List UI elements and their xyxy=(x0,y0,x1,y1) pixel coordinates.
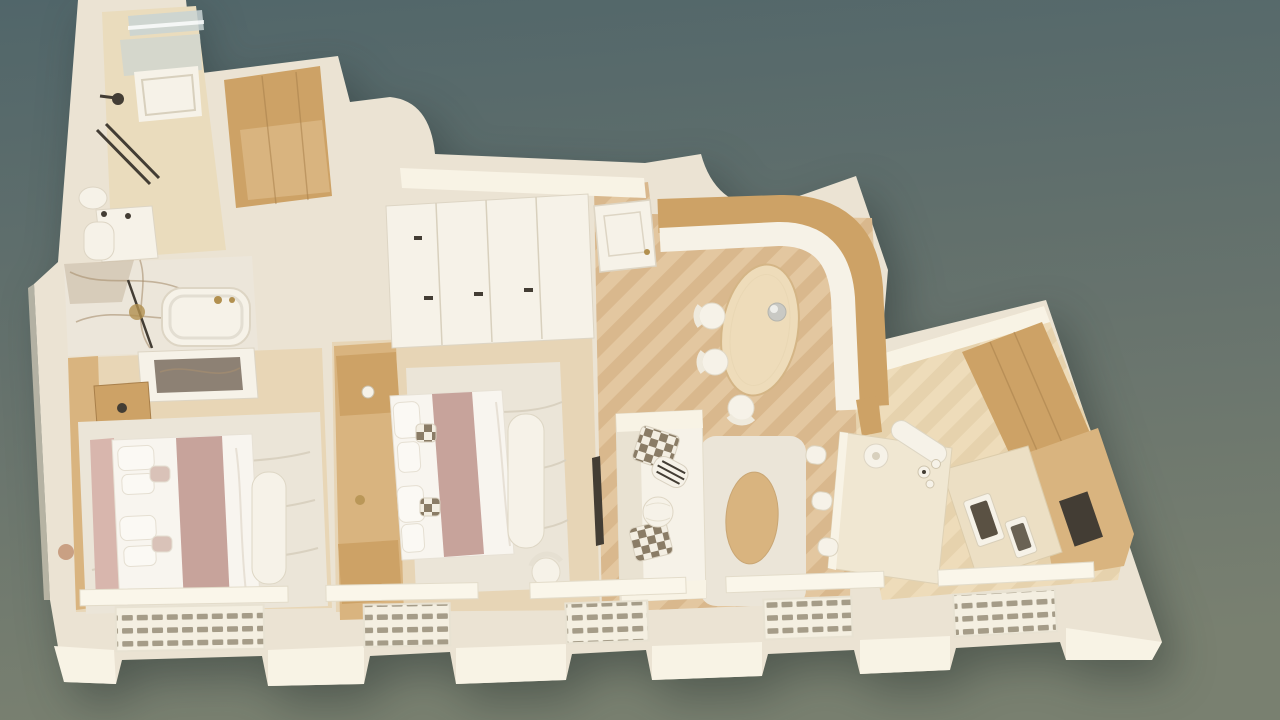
radiator xyxy=(364,603,451,646)
radiator xyxy=(763,596,852,639)
pendant-lamp xyxy=(768,303,786,321)
sofa xyxy=(616,410,706,602)
boucle-bench xyxy=(508,414,544,548)
window-sill xyxy=(80,586,288,606)
vanity-basin xyxy=(79,187,107,209)
wardrobe-niche xyxy=(224,66,332,208)
radiator xyxy=(953,589,1057,636)
dresser-marble-top xyxy=(138,348,258,402)
built-in-wardrobes xyxy=(386,194,594,348)
boucle-bench xyxy=(252,472,286,584)
door-knob xyxy=(644,249,650,255)
bed-throw xyxy=(176,436,230,604)
tub-faucet xyxy=(214,296,222,304)
entry-door xyxy=(594,200,656,272)
checker-pillow xyxy=(416,424,436,442)
floorplan-3d-render: 3D cutaway dollhouse floor-plan render o… xyxy=(0,0,1280,720)
wc xyxy=(84,222,114,260)
window-sill xyxy=(326,583,478,602)
ball-cushion xyxy=(643,497,673,527)
pendant-lamp-icon xyxy=(362,386,374,398)
radiator xyxy=(116,605,265,652)
checker-pillow xyxy=(420,498,440,516)
pouf xyxy=(58,544,74,560)
table-lamp-icon xyxy=(117,403,127,413)
radiator xyxy=(565,601,648,644)
